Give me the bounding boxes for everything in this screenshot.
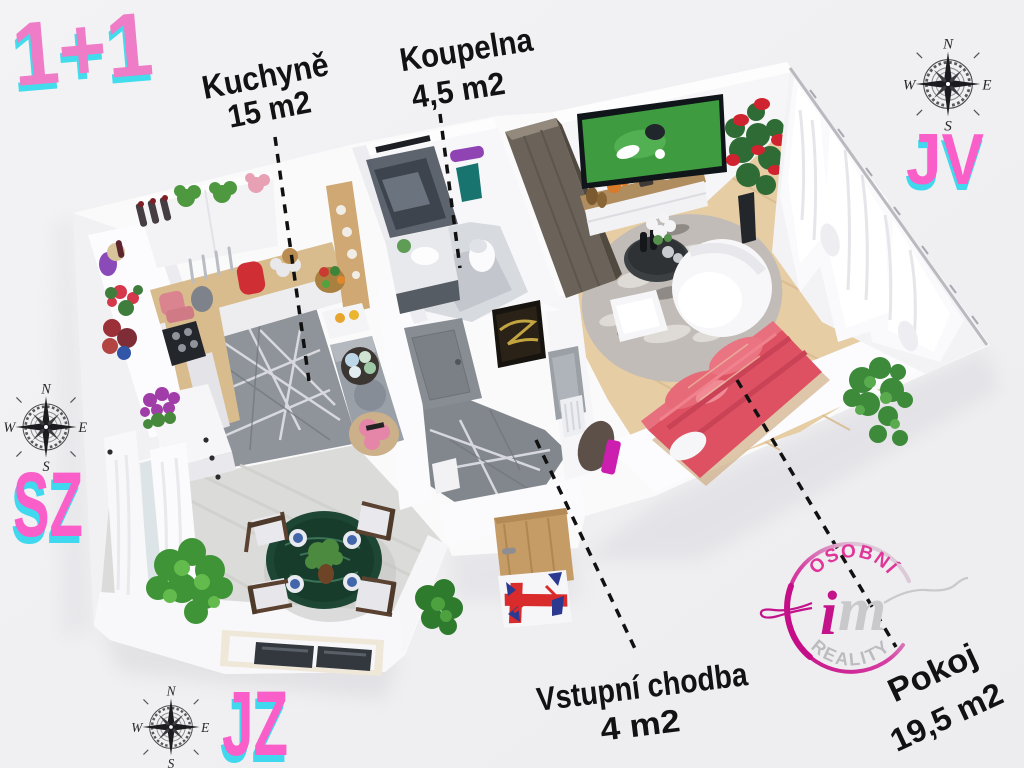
svg-text:1+1: 1+1 — [8, 0, 156, 106]
svg-text:SZ: SZ — [13, 454, 83, 556]
svg-text:JZ: JZ — [222, 673, 288, 768]
svg-text:JV: JV — [906, 120, 984, 200]
svg-text:m: m — [838, 576, 886, 644]
